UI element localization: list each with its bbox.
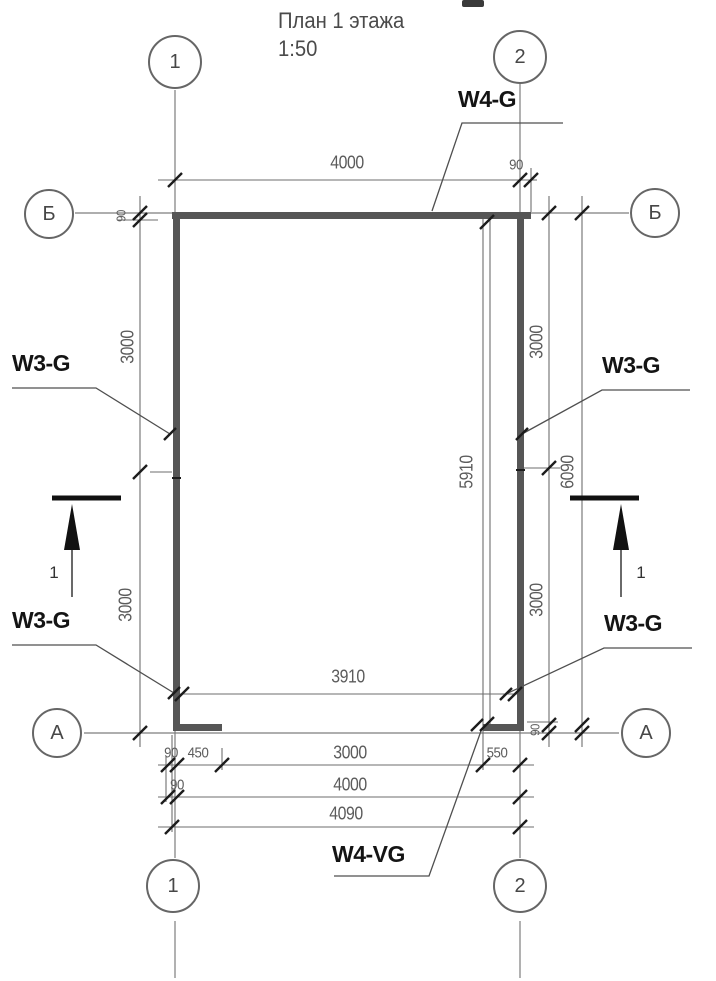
- dim-left-thickness: 90: [114, 210, 129, 222]
- dim-row3-4090: 4090: [329, 804, 362, 825]
- dim-left-lower: 3000: [116, 588, 137, 621]
- floor-plan-drawing: План 1 этажа 1:50 1 2 1 2 Б Б А А W4-G W…: [0, 0, 716, 981]
- dim-right-thickness: 90: [528, 724, 543, 736]
- section-label-left: 1: [49, 563, 58, 583]
- dim-row1-450: 450: [188, 745, 209, 762]
- dim-row2-90: 90: [170, 777, 184, 794]
- dim-row1-3000: 3000: [333, 743, 366, 764]
- dim-right-upper: 3000: [527, 325, 548, 358]
- grid-bubble-b-right: Б: [630, 188, 680, 238]
- grid-bubble-a-right: А: [621, 708, 671, 758]
- grid-label-1: 1: [167, 875, 178, 898]
- wall-tag-w3g-left-lower: W3-G: [12, 607, 70, 634]
- dim-left-upper: 3000: [118, 330, 139, 363]
- section-mark-right: [570, 498, 639, 597]
- grid-bubble-1-top: 1: [148, 35, 202, 89]
- drawing-scale: 1:50: [278, 36, 317, 62]
- wall-tag-w3g-left-upper: W3-G: [12, 350, 70, 377]
- dim-right-total: 6090: [558, 455, 579, 488]
- wall-tag-w4g-top: W4-G: [458, 86, 516, 113]
- grid-label-a: А: [639, 722, 652, 745]
- plan-linework: [0, 0, 716, 981]
- grid-label-b: Б: [648, 202, 661, 225]
- dim-top-right-offset: 90: [509, 157, 523, 174]
- grid-bubble-2-top: 2: [493, 30, 547, 84]
- dim-row1-90: 90: [164, 745, 178, 762]
- wall-tag-w4vg-bottom: W4-VG: [332, 841, 405, 868]
- dim-inner-width: 3910: [331, 667, 364, 688]
- grid-bubble-1-bottom: 1: [146, 859, 200, 913]
- dim-row2-4000: 4000: [333, 775, 366, 796]
- dim-inner-height: 5910: [457, 455, 478, 488]
- grid-bubble-2-bottom: 2: [493, 859, 547, 913]
- crop-artifact: [462, 0, 484, 7]
- dim-row1-550: 550: [487, 745, 508, 762]
- grid-label-a: А: [50, 722, 63, 745]
- grid-label-1: 1: [169, 51, 180, 74]
- grid-bubble-a-left: А: [32, 708, 82, 758]
- dim-top-width: 4000: [330, 153, 363, 174]
- grid-label-2: 2: [514, 875, 525, 898]
- dim-right-lower: 3000: [527, 583, 548, 616]
- section-mark-left: [52, 498, 121, 597]
- grid-label-2: 2: [514, 46, 525, 69]
- wall-tag-w3g-right-lower: W3-G: [604, 610, 662, 637]
- wall-tag-w3g-right-upper: W3-G: [602, 352, 660, 379]
- section-label-right: 1: [636, 563, 645, 583]
- drawing-title: План 1 этажа: [278, 8, 404, 34]
- grid-bubble-b-left: Б: [24, 189, 74, 239]
- grid-label-b: Б: [42, 203, 55, 226]
